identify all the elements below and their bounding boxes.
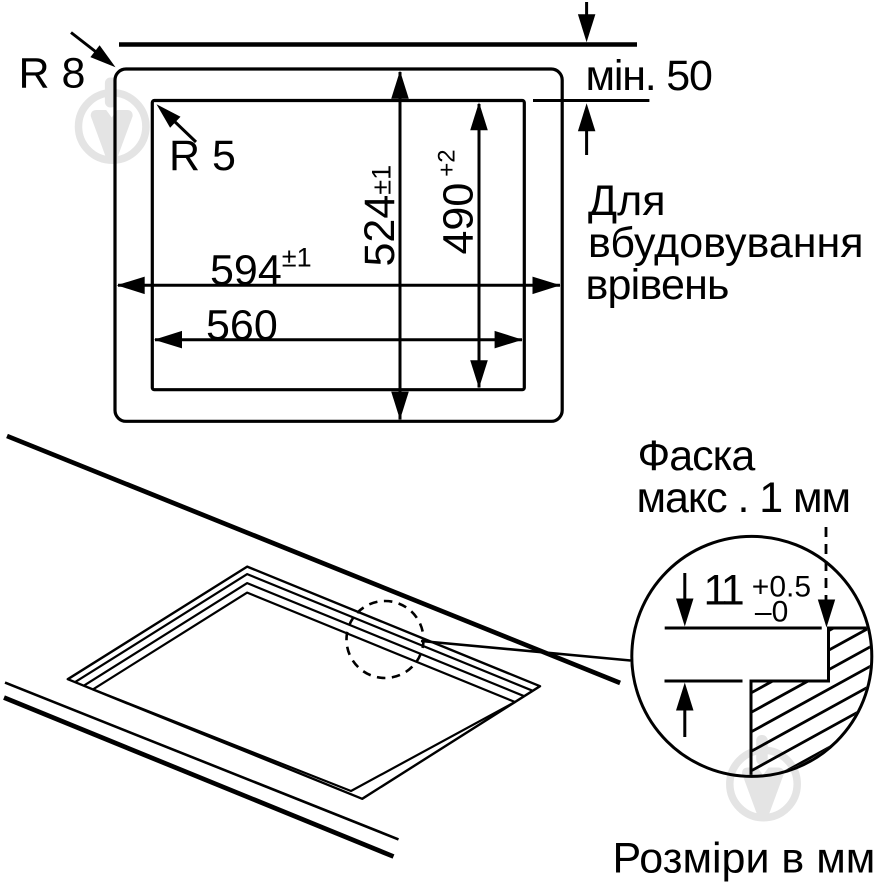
svg-text:490+2: 490+2 <box>434 149 483 254</box>
svg-text:Фаска: Фаска <box>638 432 756 480</box>
svg-text:мін. 50: мін. 50 <box>586 52 712 100</box>
svg-text:560: 560 <box>206 302 278 350</box>
svg-text:–0: –0 <box>755 595 788 628</box>
svg-text:врівень: врівень <box>586 261 729 309</box>
svg-text:Для: Для <box>588 177 666 225</box>
svg-text:594±1: 594±1 <box>210 243 312 295</box>
svg-text:Розміри в мм: Розміри в мм <box>613 835 876 883</box>
svg-text:524±1: 524±1 <box>356 165 404 267</box>
svg-text:11: 11 <box>704 566 743 614</box>
svg-text:R 8: R 8 <box>19 49 86 97</box>
svg-text:макс . 1 мм: макс . 1 мм <box>637 474 851 522</box>
svg-text:R 5: R 5 <box>169 132 236 180</box>
svg-text:вбудовування: вбудовування <box>588 219 864 267</box>
